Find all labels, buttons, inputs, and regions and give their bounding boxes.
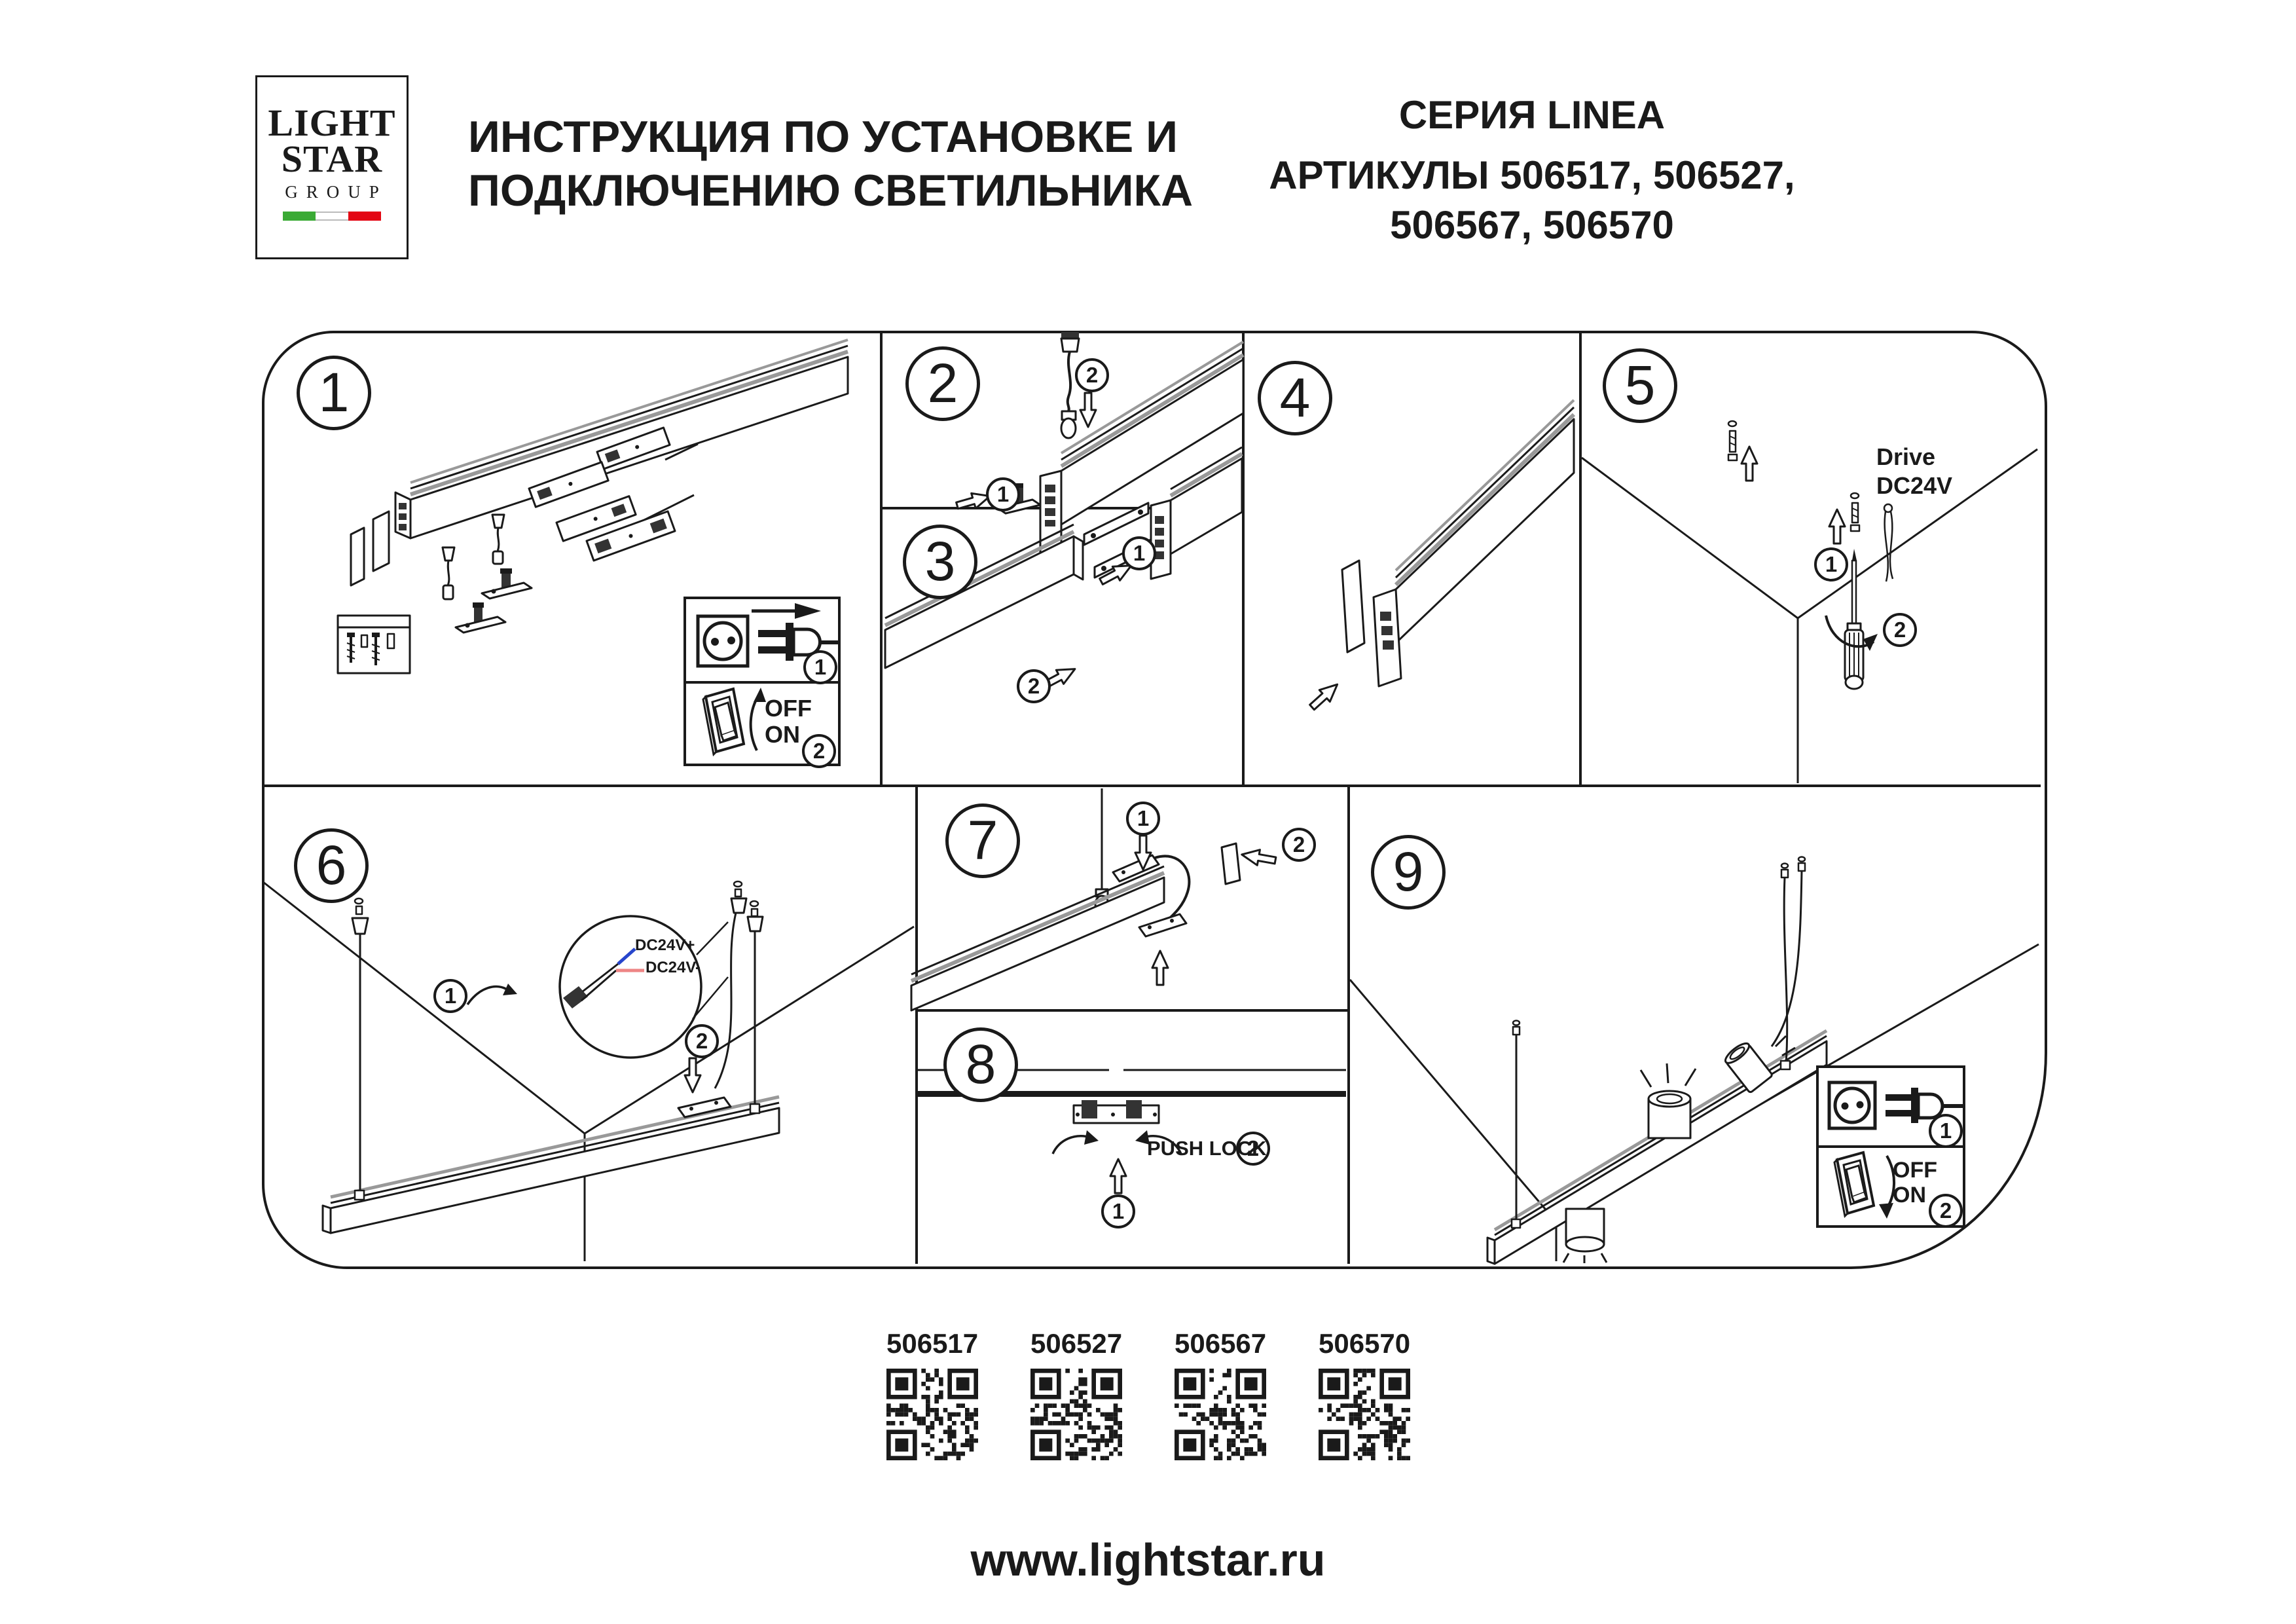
divider-v-3 (1579, 331, 1582, 787)
qr-article-label: 506570 (1319, 1328, 1410, 1359)
series-block: СЕРИЯ LINEA АРТИКУЛЫ 506517, 506527, 506… (1205, 90, 1859, 250)
diagram-frame (262, 331, 2047, 1269)
qr-code (1175, 1369, 1266, 1460)
italian-flag-stripe (283, 212, 381, 221)
drive-label: Drive (1876, 443, 1952, 471)
panel-9-number: 9 (1371, 835, 1446, 910)
qr-article-label: 506567 (1175, 1328, 1266, 1359)
website-url: www.lightstar.ru (0, 1534, 2296, 1586)
p6-step-2: 2 (685, 1024, 719, 1058)
qr-item: 506570 (1319, 1328, 1410, 1460)
off-label: OFF (1893, 1158, 1937, 1183)
p9-step-1: 1 (1929, 1114, 1963, 1148)
p7-step-1: 1 (1126, 802, 1160, 836)
qr-item: 506517 (886, 1328, 978, 1460)
qr-article-label: 506517 (886, 1328, 978, 1359)
qr-item: 506527 (1030, 1328, 1122, 1460)
panel-3-number: 3 (903, 525, 977, 599)
series-name: СЕРИЯ LINEA (1205, 90, 1859, 140)
p5-step-2: 2 (1883, 613, 1917, 647)
divider-v-5 (1347, 786, 1350, 1264)
divider-h-78 (917, 1009, 1349, 1012)
qr-item: 506567 (1175, 1328, 1266, 1460)
page-title: ИНСТРУКЦИЯ ПО УСТАНОВКЕ И ПОДКЛЮЧЕНИЮ СВ… (468, 110, 1193, 217)
qr-code (886, 1369, 978, 1460)
drive-dc24v-label: Drive DC24V (1876, 443, 1952, 500)
divider-h-main (263, 784, 2041, 787)
p3-step-1: 1 (1122, 536, 1156, 570)
divider-h-23 (881, 507, 1243, 509)
instruction-sheet: LIGHT STAR GROUP ИНСТРУКЦИЯ ПО УСТАНОВКЕ… (0, 0, 2296, 1624)
logo-word-group: GROUP (257, 182, 407, 202)
qr-code (1030, 1369, 1122, 1460)
panel-7-number: 7 (945, 803, 1020, 878)
qr-code (1319, 1369, 1410, 1460)
panel-6-number: 6 (294, 828, 369, 903)
divider-v-2 (1242, 331, 1245, 787)
panel-5-number: 5 (1603, 348, 1677, 423)
p2-step-1: 1 (986, 477, 1020, 511)
panel-2-number: 2 (905, 346, 980, 421)
logo-word-light: LIGHT (257, 105, 407, 141)
off-label: OFF (765, 695, 812, 722)
title-line-1: ИНСТРУКЦИЯ ПО УСТАНОВКЕ И (468, 110, 1193, 164)
title-line-2: ПОДКЛЮЧЕНИЮ СВЕТИЛЬНИКА (468, 164, 1193, 217)
p7-step-2: 2 (1282, 828, 1316, 862)
qr-article-label: 506527 (1030, 1328, 1122, 1359)
on-label: ON (765, 722, 812, 748)
divider-v-4 (915, 786, 918, 1264)
dc24v-label: DC24V (1876, 471, 1952, 500)
p1-offon-label: OFF ON (765, 695, 812, 748)
p9-offon-label: OFF ON (1893, 1158, 1937, 1208)
p3-step-2: 2 (1017, 669, 1051, 703)
p6-step-1: 1 (433, 979, 467, 1013)
push-lock-label: PUSH LOCK (1147, 1137, 1267, 1160)
p1-step-1: 1 (803, 650, 837, 684)
logo-word-star: STAR (257, 141, 407, 177)
on-label: ON (1893, 1183, 1937, 1208)
articles-line-2: 506567, 506570 (1205, 200, 1859, 250)
panel-1-number: 1 (297, 356, 371, 430)
divider-v-1 (880, 331, 883, 787)
p2-step-2: 2 (1075, 358, 1109, 392)
panel-8-number: 8 (943, 1027, 1018, 1102)
articles-line-1: АРТИКУЛЫ 506517, 506527, (1205, 151, 1859, 200)
p5-step-1: 1 (1814, 547, 1848, 581)
dc24v-plus-label: DC24V+ (635, 936, 695, 955)
panel-4-number: 4 (1258, 361, 1332, 435)
dc24v-minus-label: DC24V- (646, 959, 701, 977)
lightstar-logo: LIGHT STAR GROUP (255, 75, 409, 259)
p8-step-1: 1 (1101, 1194, 1135, 1228)
